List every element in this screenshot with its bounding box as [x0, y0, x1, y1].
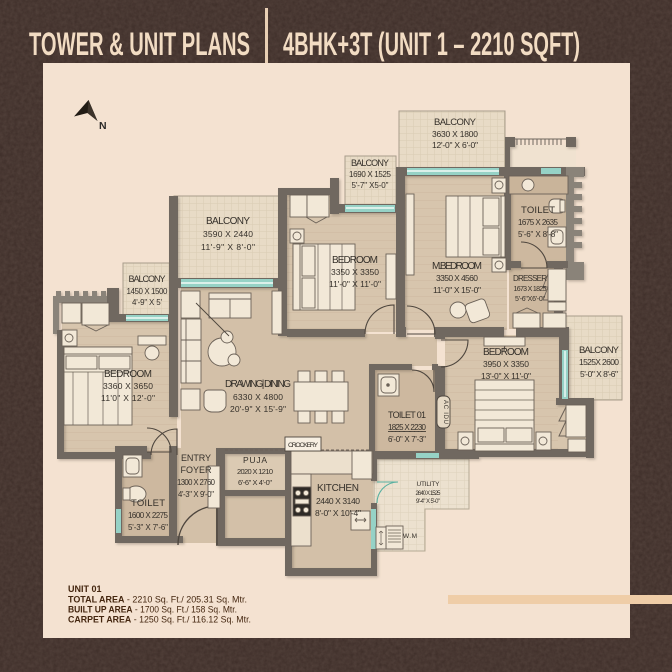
- svg-text:3360 X 3650: 3360 X 3650: [103, 381, 153, 391]
- svg-text:1690 X 1525: 1690 X 1525: [349, 170, 392, 179]
- svg-text:TOILET 01: TOILET 01: [388, 410, 426, 420]
- svg-text:1450 X 1500: 1450 X 1500: [127, 287, 169, 296]
- svg-text:UTILITY: UTILITY: [417, 481, 441, 488]
- svg-text:3950 X 3350: 3950 X 3350: [483, 359, 529, 369]
- svg-text:5'-6"X6'-0": 5'-6"X6'-0": [515, 296, 546, 303]
- svg-text:6330 X 4800: 6330 X 4800: [233, 392, 283, 402]
- svg-text:2440 X 3140: 2440 X 3140: [316, 496, 360, 506]
- svg-text:1525X 2600: 1525X 2600: [579, 357, 619, 367]
- svg-text:1675 X 2635: 1675 X 2635: [518, 218, 559, 227]
- svg-text:20'-9" X 15'-9": 20'-9" X 15'-9": [230, 404, 286, 414]
- svg-text:ENTRY: ENTRY: [181, 453, 211, 463]
- svg-text:3630 X 1800: 3630 X 1800: [432, 129, 478, 139]
- svg-text:3350 X 4560: 3350 X 4560: [436, 273, 478, 283]
- svg-text:5'-7" X5-0": 5'-7" X5-0": [352, 181, 389, 190]
- svg-text:4BHK+3T (UNIT 1 – 2210 SQFT): 4BHK+3T (UNIT 1 – 2210 SQFT): [283, 26, 580, 62]
- svg-text:8'-0" X 10'-4": 8'-0" X 10'-4": [315, 508, 361, 518]
- svg-text:4'-9" X 5': 4'-9" X 5': [132, 298, 162, 307]
- svg-text:DRESSER: DRESSER: [513, 274, 547, 283]
- svg-text:11'0" X 12'-0": 11'0" X 12'-0": [101, 393, 155, 403]
- svg-text:AC IDU: AC IDU: [442, 400, 448, 424]
- svg-text:5'-0" X 8'-6": 5'-0" X 8'-6": [580, 369, 618, 379]
- svg-text:W.M: W.M: [403, 533, 417, 540]
- svg-text:DRAWING| DINING: DRAWING| DINING: [225, 379, 291, 390]
- svg-text:BALCONY: BALCONY: [579, 345, 620, 356]
- svg-text:TOILET: TOILET: [131, 498, 165, 509]
- svg-text:N: N: [99, 120, 107, 132]
- svg-text:6'-6" X 4'-0": 6'-6" X 4'-0": [238, 478, 272, 487]
- svg-text:FOYER: FOYER: [181, 465, 213, 475]
- svg-text:PUJA: PUJA: [243, 455, 267, 465]
- svg-text:TOILET: TOILET: [521, 205, 555, 216]
- svg-text:M.BEDROOM: M.BEDROOM: [432, 261, 482, 272]
- svg-text:1825 X 2230: 1825 X 2230: [388, 423, 427, 432]
- svg-text:1673 X 1825: 1673 X 1825: [514, 286, 547, 293]
- svg-text:BEDROOM: BEDROOM: [332, 255, 378, 266]
- svg-text:BALCONY: BALCONY: [129, 274, 166, 284]
- svg-text:2020 X 1210: 2020 X 1210: [237, 467, 273, 476]
- svg-text:TOWER & UNIT PLANS: TOWER & UNIT PLANS: [29, 26, 250, 62]
- svg-text:BALCONY: BALCONY: [206, 216, 250, 227]
- svg-text:BALCONY: BALCONY: [434, 117, 477, 128]
- svg-text:5'-3" X 7'-6": 5'-3" X 7'-6": [128, 523, 168, 532]
- svg-text:2640 X 1525: 2640 X 1525: [416, 491, 442, 497]
- svg-text:1600 X 2275: 1600 X 2275: [128, 511, 169, 520]
- svg-text:CROCKERY: CROCKERY: [288, 442, 318, 449]
- svg-text:11'-0" X 15'-0": 11'-0" X 15'-0": [433, 285, 481, 295]
- svg-text:1300 X 2760: 1300 X 2760: [177, 478, 216, 487]
- svg-text:4'-3" X 9'-0": 4'-3" X 9'-0": [178, 490, 214, 499]
- svg-text:11'-0" X 11'-0": 11'-0" X 11'-0": [329, 279, 381, 289]
- svg-text:BALCONY: BALCONY: [351, 158, 389, 168]
- svg-text:5'-6" X 8'-8": 5'-6" X 8'-8": [518, 230, 558, 239]
- svg-text:3350 X 3350: 3350 X 3350: [331, 267, 379, 277]
- svg-text:6'-0" X 7'-3": 6'-0" X 7'-3": [388, 435, 426, 444]
- svg-text:11'-9" X 8'-0": 11'-9" X 8'-0": [201, 242, 255, 252]
- svg-text:3590 X 2440: 3590 X 2440: [203, 229, 253, 239]
- svg-text:12'-0" X 6'-0": 12'-0" X 6'-0": [432, 140, 478, 150]
- svg-text:13'-0" X 11'-0": 13'-0" X 11'-0": [481, 371, 531, 381]
- svg-text:UNIT 01: UNIT 01: [68, 584, 102, 594]
- svg-text:BEDROOM: BEDROOM: [483, 347, 529, 358]
- svg-text:9'-4" X 5'-0": 9'-4" X 5'-0": [416, 499, 440, 505]
- svg-text:CARPET AREA - 1250 Sq. Ft./ 11: CARPET AREA - 1250 Sq. Ft./ 116.12 Sq. M…: [68, 615, 251, 626]
- svg-text:KITCHEN: KITCHEN: [317, 483, 359, 494]
- svg-text:BEDROOM: BEDROOM: [104, 369, 152, 380]
